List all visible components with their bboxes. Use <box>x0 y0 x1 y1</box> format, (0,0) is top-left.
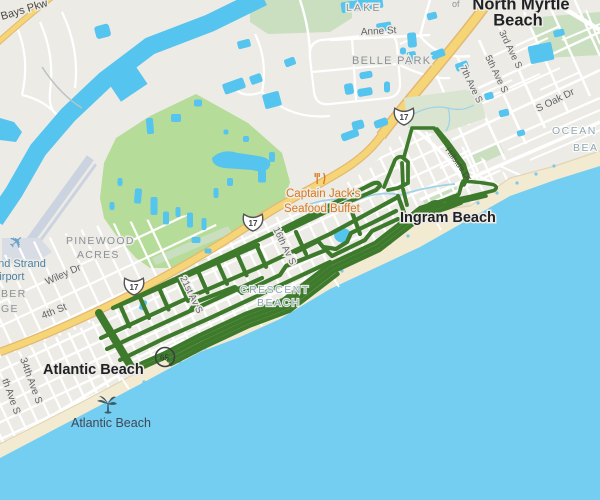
svg-text:ACRES: ACRES <box>77 249 120 261</box>
svg-text:PINEWOOD: PINEWOOD <box>66 235 135 247</box>
svg-text:BELLE PARK: BELLE PARK <box>352 55 431 67</box>
svg-text:Seafood Buffet: Seafood Buffet <box>284 203 361 215</box>
svg-text:Beach: Beach <box>493 12 543 30</box>
svg-text:BEACH: BEACH <box>257 297 301 309</box>
svg-text:17: 17 <box>130 283 139 292</box>
svg-text:LAKE: LAKE <box>346 2 382 14</box>
svg-text:Anne St: Anne St <box>361 25 397 38</box>
svg-text:BEA: BEA <box>573 142 599 154</box>
svg-text:17: 17 <box>249 219 258 228</box>
svg-text:Airport: Airport <box>0 271 24 283</box>
svg-text:CRESCENT: CRESCENT <box>240 284 310 296</box>
svg-text:17: 17 <box>400 113 409 122</box>
svg-text:65: 65 <box>160 354 169 363</box>
svg-text:GE: GE <box>1 303 19 315</box>
svg-text:of: of <box>452 0 460 9</box>
svg-text:BER: BER <box>1 288 27 300</box>
svg-text:Atlantic Beach: Atlantic Beach <box>71 416 151 430</box>
svg-text:Ingram Beach: Ingram Beach <box>400 210 496 226</box>
svg-text:Atlantic Beach: Atlantic Beach <box>43 362 144 378</box>
svg-text:and Strand: and Strand <box>0 258 46 270</box>
svg-text:OCEAN: OCEAN <box>552 125 597 137</box>
svg-text:Captain Jack's: Captain Jack's <box>286 188 361 200</box>
